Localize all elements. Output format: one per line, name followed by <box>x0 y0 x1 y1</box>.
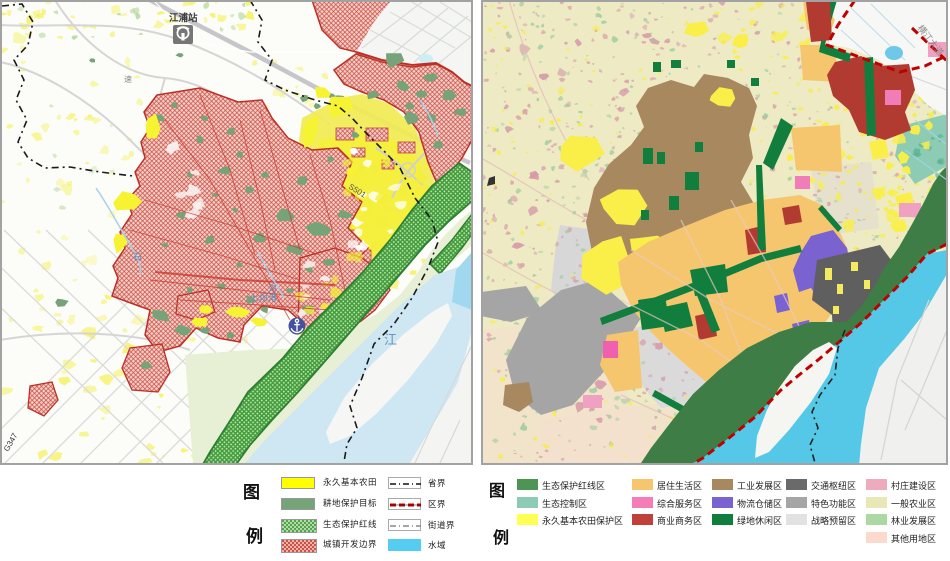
svg-text:江浦站: 江浦站 <box>169 12 198 24</box>
svg-text:石: 石 <box>133 252 142 262</box>
svg-text:江: 江 <box>384 332 397 347</box>
svg-text:七坝港: 七坝港 <box>250 292 277 303</box>
svg-text:速: 速 <box>124 75 132 84</box>
